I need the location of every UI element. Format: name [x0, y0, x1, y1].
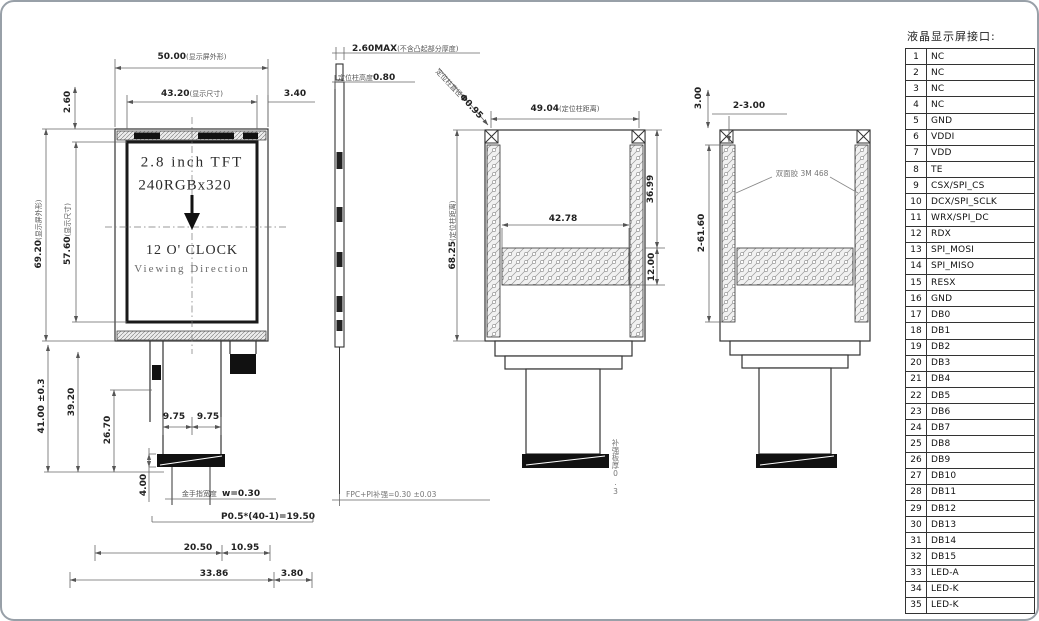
dim-w1: 20.50 — [184, 537, 212, 553]
pin-number: 6 — [906, 130, 927, 145]
pin-row: 32DB15 — [906, 548, 1034, 564]
pin-row: 22DB5 — [906, 387, 1034, 403]
pin-number: 22 — [906, 388, 927, 403]
dim-view-height: 57.60(显示尺寸) — [57, 203, 73, 265]
dim-view-width: 43.20(显示尺寸) — [161, 83, 223, 99]
pin-number: 8 — [906, 162, 927, 177]
pin-name: DB8 — [927, 439, 950, 449]
pitch-note: P0.5*(40-1)=19.50 — [221, 506, 315, 522]
pin-name: DB3 — [927, 358, 950, 368]
pin-number: 17 — [906, 307, 927, 322]
pin-row: 4NC — [906, 96, 1034, 112]
adhesive-note: 双面胶 3M 468 — [776, 163, 829, 179]
stiffener-note: 补强板厚0.3 — [607, 439, 623, 496]
pin-number: 32 — [906, 549, 927, 564]
pin-row: 28DB11 — [906, 484, 1034, 500]
screen-viewing-direction-text: Viewing Direction — [134, 263, 250, 275]
pin-name: DB10 — [927, 471, 956, 481]
pin-name: SPI_MISO — [927, 261, 974, 271]
side-view-dimensions — [332, 47, 490, 506]
pin-number: 31 — [906, 533, 927, 548]
pin-number: 34 — [906, 582, 927, 597]
pin-name: RESX — [927, 278, 956, 288]
pin-row: 7VDD — [906, 145, 1034, 161]
dim-post-distance-w: 49.04(定位柱距离) — [531, 98, 600, 114]
pin-number: 13 — [906, 243, 927, 258]
dim-outer-width: 50.00(显示屏外形) — [158, 46, 227, 62]
pin-name: DCX/SPI_SCLK — [927, 197, 997, 207]
pin-name: CSX/SPI_CS — [927, 181, 985, 191]
pin-row: 23DB6 — [906, 403, 1034, 419]
pin-number: 10 — [906, 194, 927, 209]
pin-name: DB11 — [927, 487, 956, 497]
dim-tail-height-2: 39.20 — [61, 388, 77, 416]
pin-number: 33 — [906, 566, 927, 581]
dim-12-00: 12.00 — [641, 253, 657, 281]
pin-name: NC — [927, 84, 944, 94]
pin-row: 30DB13 — [906, 516, 1034, 532]
pin-name: LED-K — [927, 584, 959, 594]
pin-name: DB13 — [927, 520, 956, 530]
pin-number: 4 — [906, 97, 927, 112]
pin-row: 18DB1 — [906, 322, 1034, 338]
pin-row: 10DCX/SPI_SCLK — [906, 193, 1034, 209]
pin-row: 8TE — [906, 161, 1034, 177]
dim-w4: 3.80 — [281, 563, 303, 579]
pin-row: 27DB10 — [906, 468, 1034, 484]
pin-number: 14 — [906, 259, 927, 274]
screen-clock-text: 12 O' CLOCK — [146, 243, 238, 259]
pin-name: SPI_MOSI — [927, 245, 974, 255]
pin-table-title: 液晶显示屏接口: — [907, 28, 1035, 44]
screen-resolution-text: 240RGBx320 — [138, 178, 231, 195]
pin-number: 20 — [906, 356, 927, 371]
dim-tail-height: 41.00 ±0.3 — [31, 378, 47, 433]
pin-name: DB14 — [927, 536, 956, 546]
pin-row: 3NC — [906, 80, 1034, 96]
pin-number: 3 — [906, 81, 927, 96]
side-view-outline — [335, 64, 344, 494]
pin-row: 12RDX — [906, 226, 1034, 242]
pin-row: 9CSX/SPI_CS — [906, 177, 1034, 193]
pin-row: 2NC — [906, 64, 1034, 80]
dim-42-78: 42.78 — [549, 208, 577, 224]
pin-row: 35LED-K — [906, 597, 1034, 613]
pin-row: 31DB14 — [906, 532, 1034, 548]
pin-number: 9 — [906, 178, 927, 193]
pin-row: 33LED-A — [906, 565, 1034, 581]
pin-name: VDD — [927, 148, 952, 158]
pin-name: DB6 — [927, 407, 950, 417]
pin-name: NC — [927, 100, 944, 110]
fpc-thickness-note: FPC+PI补强=0.30 ±0.03 — [346, 484, 436, 500]
pin-name: RDX — [927, 229, 951, 239]
pin-table-body: 1NC2NC3NC4NC5GND6VDDI7VDD8TE9CSX/SPI_CS1… — [905, 48, 1035, 614]
dim-w2: 10.95 — [231, 537, 259, 553]
pin-row: 6VDDI — [906, 129, 1034, 145]
dim-outer-height: 69.20(显示屏外形) — [28, 200, 44, 269]
dim-right-gap: 3.40 — [284, 83, 306, 99]
pin-number: 23 — [906, 404, 927, 419]
pin-number: 16 — [906, 291, 927, 306]
pin-row: 21DB4 — [906, 371, 1034, 387]
dim-36-99: 36.99 — [640, 175, 656, 203]
pin-name: NC — [927, 68, 944, 78]
pin-name: DB0 — [927, 310, 950, 320]
tft-module-drawing: 50.00(显示屏外形) 43.20(显示尺寸) 3.40 2.60 69.20… — [0, 0, 1039, 621]
pin-row: 24DB7 — [906, 419, 1034, 435]
pin-row: 14SPI_MISO — [906, 258, 1034, 274]
pin-row: 11WRX/SPI_DC — [906, 209, 1034, 225]
dim-tail-height-3: 26.70 — [97, 416, 113, 444]
dim-tape-width: 2-3.00 — [733, 95, 765, 111]
pin-number: 27 — [906, 469, 927, 484]
drawing-linework — [2, 2, 1039, 621]
pin-name: DB5 — [927, 391, 950, 401]
pin-number: 35 — [906, 598, 927, 613]
pin-number: 15 — [906, 275, 927, 290]
pin-number: 26 — [906, 453, 927, 468]
pin-name: DB7 — [927, 423, 950, 433]
dim-finger-right: 9.75 — [197, 406, 219, 422]
pin-row: 20DB3 — [906, 355, 1034, 371]
pin-row: 1NC — [906, 49, 1034, 64]
back-view-1-outline — [485, 130, 645, 468]
pin-name: GND — [927, 116, 952, 126]
pin-number: 12 — [906, 227, 927, 242]
pin-name: LED-A — [927, 568, 959, 578]
pin-name: DB15 — [927, 552, 956, 562]
pin-table-panel: 液晶显示屏接口: 1NC2NC3NC4NC5GND6VDDI7VDD8TE9CS… — [905, 28, 1035, 614]
pin-number: 7 — [906, 146, 927, 161]
dim-stiffener-height: 4.00 — [133, 474, 149, 496]
pin-row: 17DB0 — [906, 306, 1034, 322]
pin-number: 18 — [906, 323, 927, 338]
dim-tape-length: 2-61.60 — [691, 214, 707, 252]
pin-row: 26DB9 — [906, 452, 1034, 468]
pin-number: 30 — [906, 517, 927, 532]
pin-row: 16GND — [906, 290, 1034, 306]
dim-top-gap: 2.60 — [57, 91, 73, 113]
pin-name: DB9 — [927, 455, 950, 465]
pin-row: 13SPI_MOSI — [906, 242, 1034, 258]
pin-number: 25 — [906, 436, 927, 451]
pin-name: LED-K — [927, 600, 959, 610]
pin-row: 25DB8 — [906, 435, 1034, 451]
dim-finger-left: 9.75 — [163, 406, 185, 422]
pin-number: 29 — [906, 501, 927, 516]
pin-row: 34LED-K — [906, 581, 1034, 597]
dim-thickness-max: 2.60MAX(不含凸起部分厚度) — [352, 38, 459, 54]
pin-name: DB1 — [927, 326, 950, 336]
pin-number: 1 — [906, 49, 927, 64]
screen-size-text: 2.8 inch TFT — [141, 155, 243, 172]
pin-number: 24 — [906, 420, 927, 435]
pin-row: 15RESX — [906, 274, 1034, 290]
pin-name: DB12 — [927, 504, 956, 514]
pin-number: 5 — [906, 114, 927, 129]
pin-number: 21 — [906, 372, 927, 387]
pin-row: 29DB12 — [906, 500, 1034, 516]
pin-number: 19 — [906, 340, 927, 355]
dim-post-distance-h: 68.25(定位柱距离) — [442, 201, 458, 270]
back-view-2-outline — [720, 130, 870, 468]
pin-name: TE — [927, 165, 943, 175]
pin-number: 2 — [906, 65, 927, 80]
pin-name: NC — [927, 52, 944, 62]
pin-number: 28 — [906, 485, 927, 500]
front-view-outline — [105, 117, 289, 505]
pin-name: GND — [927, 294, 952, 304]
pin-name: VDDI — [927, 132, 954, 142]
pin-row: 19DB2 — [906, 339, 1034, 355]
dim-w3: 33.86 — [200, 563, 228, 579]
pin-name: DB4 — [927, 374, 950, 384]
gold-finger-note: 金手指宽度 w=0.30 — [182, 483, 260, 499]
pin-number: 11 — [906, 210, 927, 225]
pin-name: DB2 — [927, 342, 950, 352]
pin-row: 5GND — [906, 113, 1034, 129]
pin-name: WRX/SPI_DC — [927, 213, 989, 223]
dim-post-height: 定位柱高度0.80 — [338, 67, 395, 83]
dim-tape-top: 3.00 — [688, 87, 704, 109]
